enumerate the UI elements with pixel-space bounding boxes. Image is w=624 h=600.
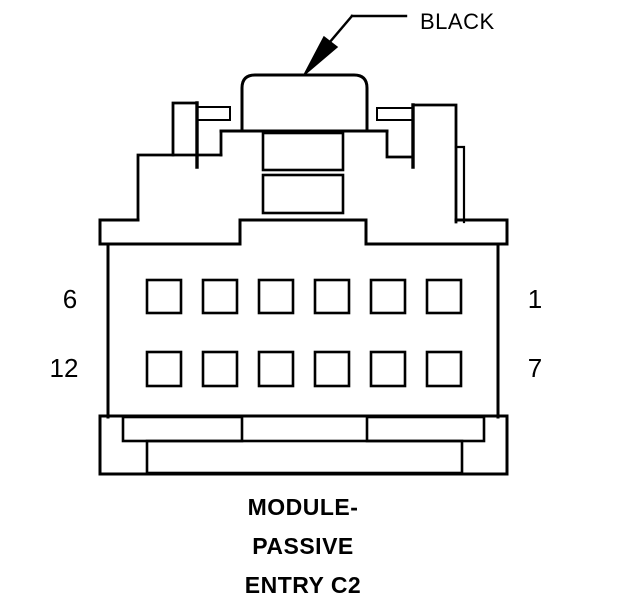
bottom-relief-wide [147, 441, 462, 473]
leader-arrow [304, 16, 406, 75]
diagram-canvas: BLACK [0, 0, 624, 600]
pin-cavity [371, 280, 405, 313]
pin-grid [147, 280, 461, 386]
pin-number-top-left: 6 [63, 284, 77, 314]
pin-cavity [427, 352, 461, 386]
caption-line-2: PASSIVE [252, 533, 354, 559]
bottom-flange-outline [100, 416, 507, 474]
left-ear [138, 103, 230, 220]
caption-line-1: MODULE- [248, 494, 359, 520]
bottom-relief-right [367, 417, 484, 441]
right-ear-small-tab [377, 108, 413, 120]
left-ear-lower-profile [138, 155, 221, 220]
connector-body [108, 244, 498, 417]
upper-flange-outline [100, 220, 507, 244]
pin-cavity [315, 352, 349, 386]
pin-cavity [203, 280, 237, 313]
pin-cavity [427, 280, 461, 313]
right-ear [377, 105, 464, 222]
latch-detail [263, 133, 343, 213]
bottom-relief-left [123, 417, 242, 441]
connector-diagram: BLACK [0, 0, 624, 600]
pin-cavity [259, 352, 293, 386]
bottom-flange [100, 416, 507, 474]
caption: MODULE- PASSIVE ENTRY C2 [245, 494, 361, 598]
left-ear-small-tab [197, 107, 230, 120]
caption-line-3: ENTRY C2 [245, 572, 361, 598]
lock-tab-outline [242, 75, 367, 131]
pin-cavity [371, 352, 405, 386]
pin-cavity [259, 280, 293, 313]
arrowhead-icon [304, 37, 337, 75]
latch-upper-rect [263, 133, 343, 170]
pin-cavity [147, 280, 181, 313]
pin-number-top-right: 1 [528, 284, 542, 314]
right-ear-outer-profile [413, 105, 456, 222]
latch-lower-rect [263, 175, 343, 213]
pin-cavity [203, 352, 237, 386]
pin-number-bottom-left: 12 [50, 353, 79, 383]
pin-cavity [147, 352, 181, 386]
left-ear-upper-profile [173, 103, 197, 155]
right-ear-inner-step [387, 131, 413, 157]
wire-color-label: BLACK [420, 9, 495, 34]
pin-cavity [315, 280, 349, 313]
pin-number-bottom-right: 7 [528, 353, 542, 383]
